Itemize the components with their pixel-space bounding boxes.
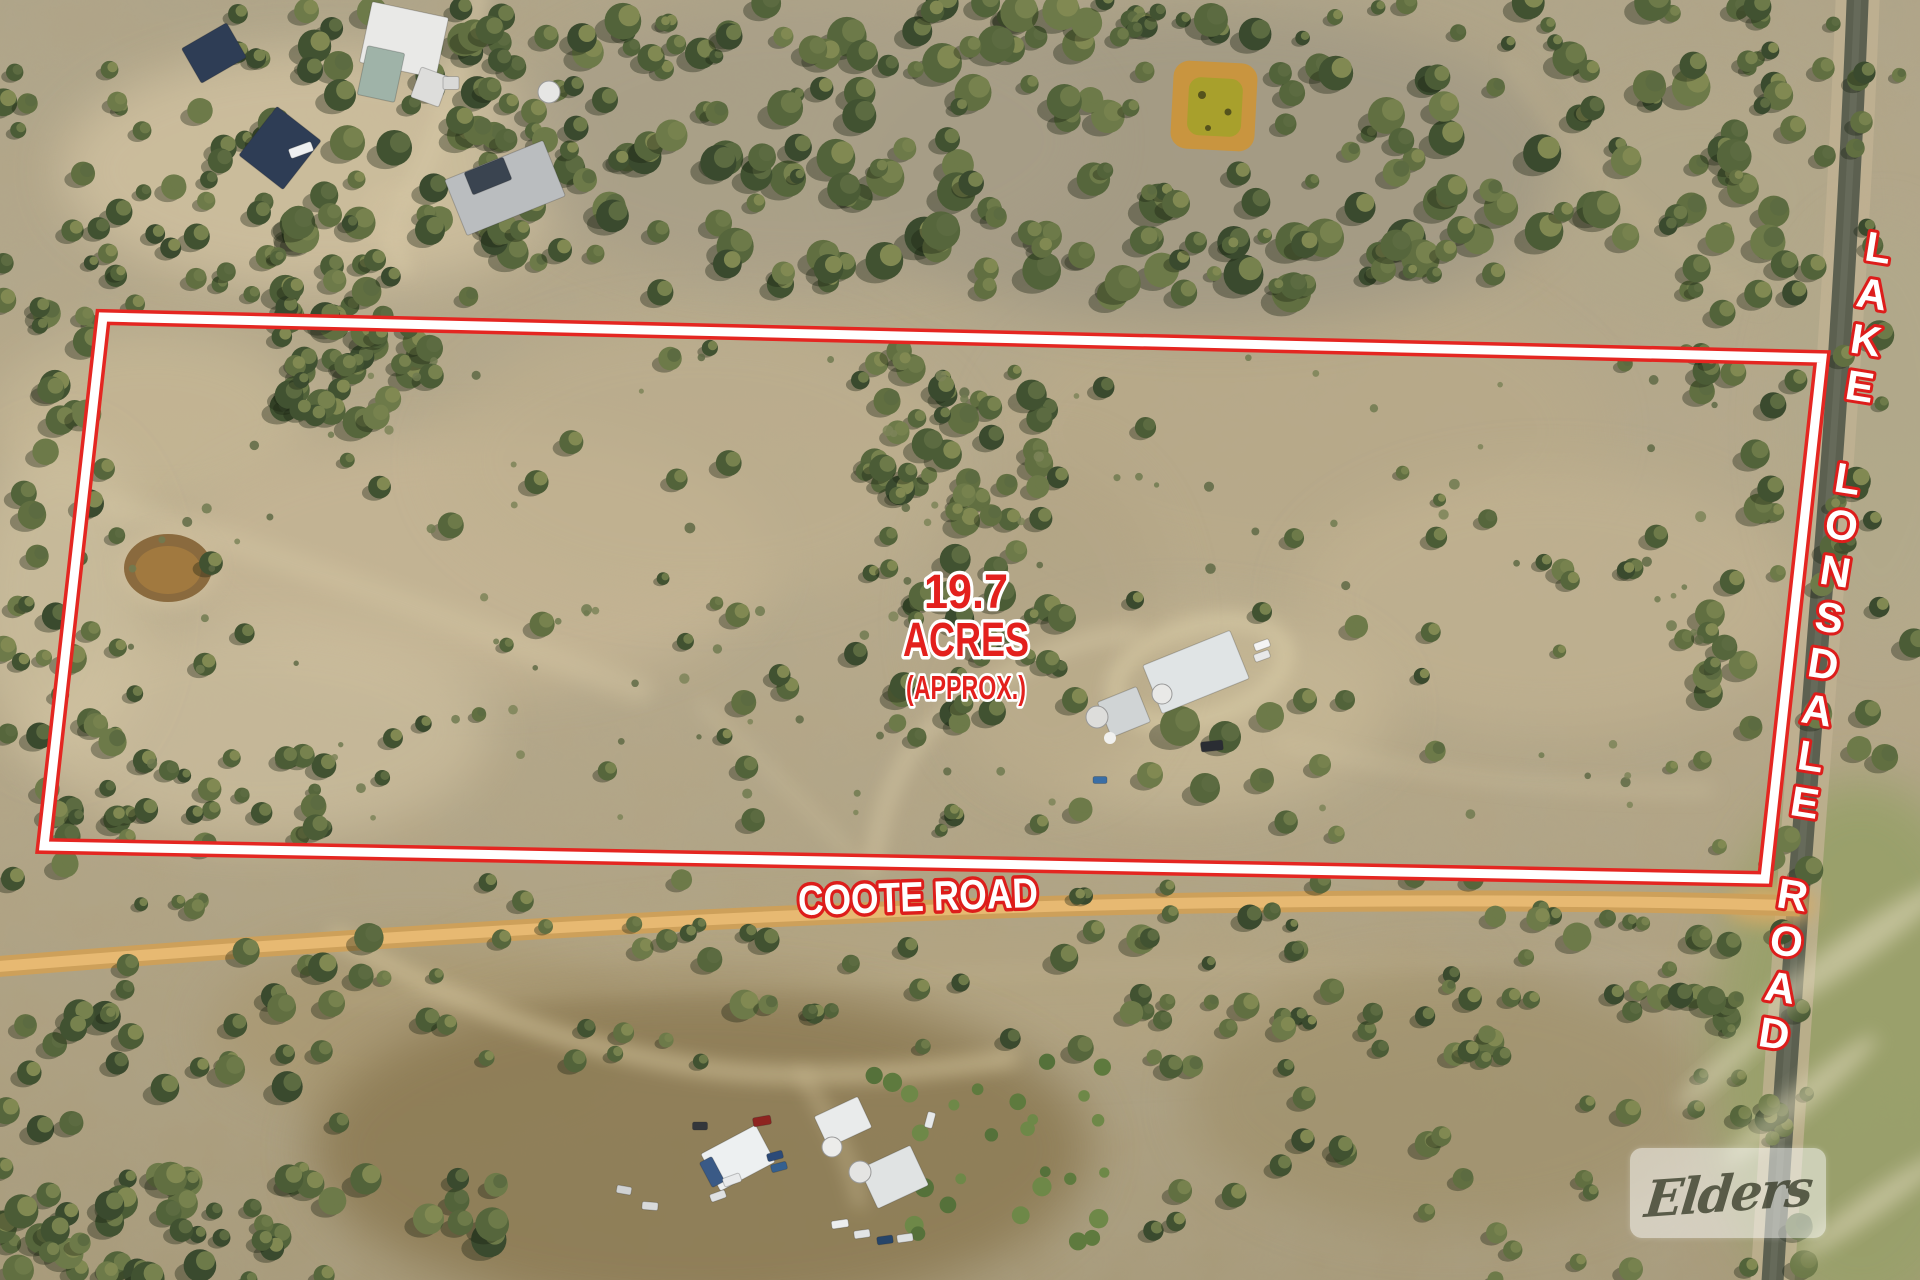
- elders-logo: Elders: [1630, 1148, 1826, 1238]
- aerial-terrain: [0, 0, 1920, 1280]
- elders-logo-text: Elders: [1642, 1157, 1814, 1228]
- aerial-photo: 19.7 ACRES (APPROX.) COOTE ROAD LAKELONS…: [0, 0, 1920, 1280]
